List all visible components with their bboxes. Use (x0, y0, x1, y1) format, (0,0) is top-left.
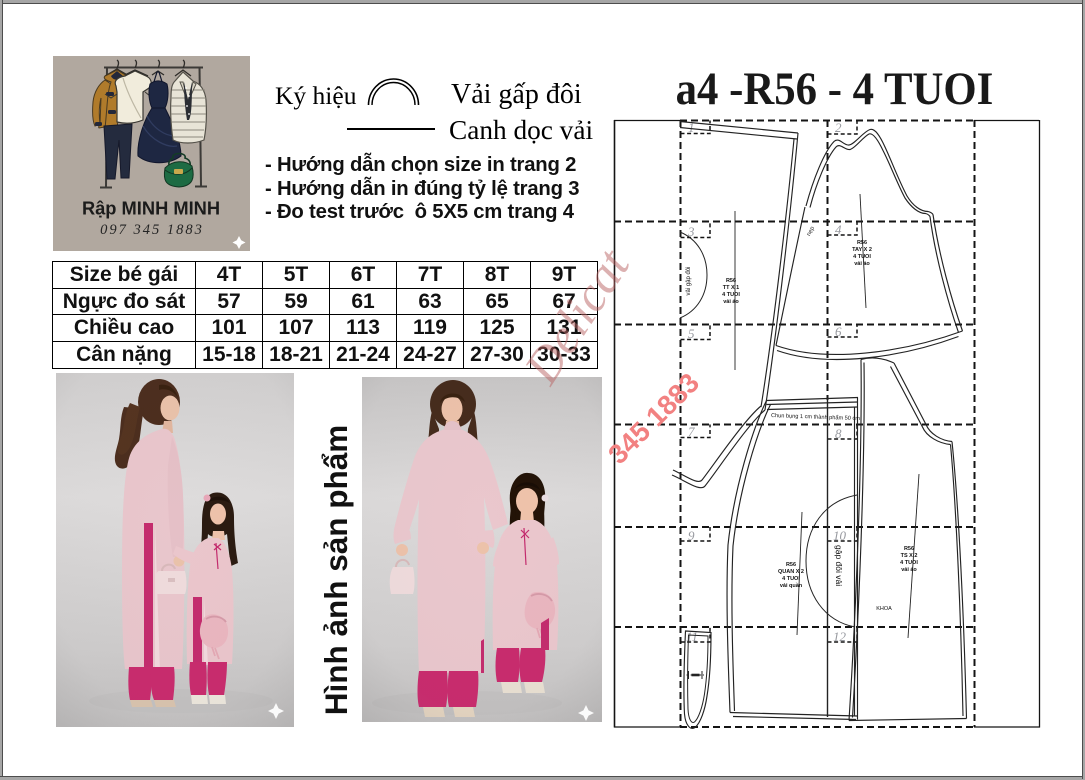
svg-text:7: 7 (688, 424, 695, 439)
svg-text:vải gập đôi: vải gập đôi (686, 266, 692, 295)
svg-text:097 345 1883: 097 345 1883 (100, 222, 204, 238)
svg-text:R56: R56 (726, 278, 736, 284)
svg-text:4 TUOI: 4 TUOI (782, 576, 800, 582)
svg-text:4: 4 (835, 222, 842, 237)
svg-text:R56: R56 (857, 240, 867, 246)
svg-text:TT X 1: TT X 1 (723, 285, 740, 291)
svg-text:10: 10 (833, 528, 847, 543)
svg-text:8: 8 (835, 426, 842, 441)
svg-text:vải áo: vải áo (723, 299, 739, 305)
svg-text:nẹp: nẹp (806, 225, 816, 237)
svg-text:vải áo: vải áo (854, 261, 870, 267)
svg-text:TAY X 2: TAY X 2 (852, 247, 872, 253)
svg-text:R56: R56 (904, 546, 914, 552)
svg-text:TS X 2: TS X 2 (901, 553, 918, 559)
svg-text:R56: R56 (786, 562, 796, 568)
svg-text:5: 5 (688, 326, 695, 341)
svg-text:KHOA: KHOA (876, 606, 892, 612)
svg-text:12: 12 (833, 629, 847, 644)
svg-text:4 TUOI: 4 TUOI (853, 254, 871, 260)
svg-text:Chun bụng 1 cm thành phẩm 50 c: Chun bụng 1 cm thành phẩm 50 cm (771, 412, 860, 422)
svg-text:gập đôi vải: gập đôi vải (834, 545, 844, 586)
svg-text:vải quần: vải quần (780, 583, 803, 589)
svg-text:4 TUOI: 4 TUOI (722, 292, 740, 298)
svg-text:Rập MINH MINH: Rập MINH MINH (82, 198, 220, 219)
svg-text:vải áo: vải áo (901, 567, 917, 573)
svg-text:2: 2 (835, 120, 842, 135)
svg-text:4 TUOI: 4 TUOI (900, 560, 918, 566)
svg-text:QUAN X 2: QUAN X 2 (778, 569, 804, 575)
svg-text:6: 6 (835, 324, 842, 339)
svg-text:9: 9 (688, 528, 695, 543)
